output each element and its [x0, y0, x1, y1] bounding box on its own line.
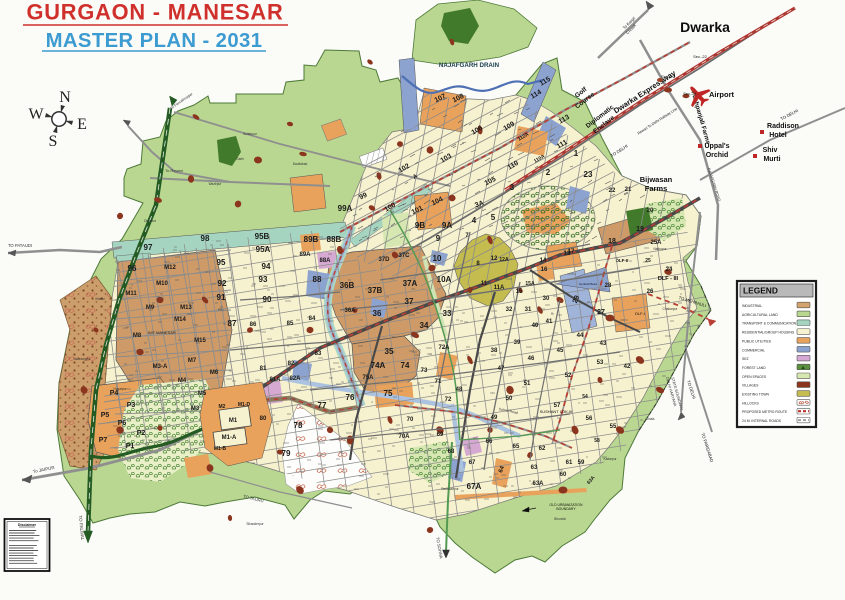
svg-text:42: 42: [624, 364, 631, 370]
svg-text:P3: P3: [127, 402, 136, 409]
svg-text:26: 26: [647, 289, 654, 295]
svg-text:Hotel: Hotel: [769, 132, 787, 139]
svg-text:P2: P2: [137, 430, 146, 437]
svg-text:70A: 70A: [398, 434, 410, 440]
svg-text:88B: 88B: [327, 235, 342, 244]
svg-text:95A: 95A: [256, 245, 271, 254]
svg-text:Shiv: Shiv: [763, 147, 778, 154]
svg-text:GURGAON - MANESAR: GURGAON - MANESAR: [27, 0, 284, 25]
svg-text:M8: M8: [133, 333, 142, 339]
svg-text:24 M. INTERNAL ROADS: 24 M. INTERNAL ROADS: [742, 419, 782, 423]
svg-text:25A: 25A: [650, 240, 662, 246]
svg-text:63A: 63A: [532, 481, 544, 487]
svg-text:46: 46: [528, 356, 535, 362]
svg-text:97: 97: [144, 243, 153, 252]
svg-text:73: 73: [421, 368, 428, 374]
svg-text:53: 53: [597, 360, 604, 366]
svg-text:S: S: [49, 133, 58, 150]
svg-text:14: 14: [540, 258, 547, 264]
svg-text:45: 45: [557, 348, 564, 354]
svg-text:M15: M15: [194, 338, 206, 344]
svg-text:N: N: [59, 89, 71, 106]
svg-text:96: 96: [128, 264, 137, 273]
svg-text:M3: M3: [191, 406, 200, 412]
svg-text:Airport: Airport: [709, 90, 735, 99]
svg-text:TO PATAUDI: TO PATAUDI: [8, 243, 32, 248]
svg-text:58: 58: [594, 438, 600, 444]
svg-text:P4: P4: [110, 390, 119, 397]
svg-text:36B: 36B: [340, 281, 355, 290]
svg-text:M10: M10: [156, 281, 168, 287]
svg-text:Sec.-22: Sec.-22: [693, 54, 708, 59]
svg-text:15: 15: [516, 289, 523, 295]
svg-text:M4: M4: [178, 378, 187, 384]
svg-text:2: 2: [546, 168, 551, 177]
svg-text:44: 44: [577, 333, 584, 339]
svg-text:21: 21: [625, 187, 632, 193]
svg-text:M11: M11: [125, 291, 137, 297]
svg-text:To Rewari: To Rewari: [165, 168, 183, 173]
svg-text:FOREST LAND: FOREST LAND: [742, 366, 766, 370]
svg-text:Raddison: Raddison: [767, 123, 799, 130]
svg-text:36: 36: [373, 309, 382, 318]
svg-text:36A: 36A: [344, 308, 356, 314]
svg-text:Orchid: Orchid: [706, 152, 729, 159]
svg-text:77: 77: [318, 401, 327, 410]
svg-text:12A: 12A: [499, 257, 509, 263]
svg-text:94: 94: [262, 262, 271, 271]
svg-text:Sec.-23: Sec.-23: [661, 74, 676, 79]
svg-text:91: 91: [217, 293, 226, 302]
svg-text:NAJAFGARH DRAIN: NAJAFGARH DRAIN: [439, 62, 500, 69]
svg-text:48: 48: [456, 387, 463, 393]
svg-text:Central Plaza: Central Plaza: [579, 282, 597, 286]
svg-text:AGRICULTURAL LAND: AGRICULTURAL LAND: [742, 313, 778, 317]
svg-text:P6: P6: [118, 420, 127, 427]
svg-text:P5: P5: [101, 412, 110, 419]
svg-text:15A: 15A: [525, 281, 535, 287]
svg-text:DLF-II: DLF-II: [616, 258, 629, 263]
svg-text:Wazirpur: Wazirpur: [209, 182, 223, 186]
svg-text:79: 79: [282, 449, 291, 458]
svg-text:66: 66: [486, 439, 493, 445]
svg-text:75: 75: [384, 389, 393, 398]
svg-text:PROPOSED METRO ROUTE: PROPOSED METRO ROUTE: [742, 410, 788, 414]
svg-text:DLF - III: DLF - III: [658, 276, 679, 282]
svg-text:67A: 67A: [467, 482, 482, 491]
svg-text:20: 20: [647, 208, 654, 214]
svg-text:81: 81: [260, 366, 267, 372]
svg-text:56: 56: [586, 416, 593, 422]
svg-text:50: 50: [506, 396, 513, 402]
svg-text:65: 65: [513, 444, 520, 450]
svg-text:M1-B: M1-B: [214, 446, 227, 452]
svg-text:P7: P7: [99, 437, 108, 444]
svg-text:COMMERCIAL: COMMERCIAL: [742, 348, 765, 352]
svg-text:19: 19: [636, 226, 644, 233]
svg-text:Dwarka: Dwarka: [680, 19, 730, 35]
svg-text:10: 10: [433, 254, 442, 263]
svg-text:40: 40: [532, 323, 539, 329]
svg-text:54: 54: [582, 394, 588, 400]
svg-text:10A: 10A: [437, 275, 452, 284]
svg-text:69: 69: [437, 432, 444, 438]
svg-text:11A: 11A: [494, 285, 505, 291]
svg-text:99A: 99A: [338, 204, 353, 213]
svg-text:E: E: [77, 116, 87, 133]
svg-text:90: 90: [263, 295, 272, 304]
svg-text:39: 39: [514, 340, 521, 346]
svg-text:82A: 82A: [289, 376, 301, 382]
svg-text:24: 24: [666, 267, 673, 273]
svg-text:M7: M7: [188, 358, 197, 364]
svg-text:89B: 89B: [304, 235, 319, 244]
svg-text:63: 63: [531, 465, 538, 471]
svg-text:4: 4: [472, 216, 477, 225]
svg-text:95B: 95B: [255, 232, 270, 241]
svg-text:Naurangpur: Naurangpur: [74, 357, 92, 361]
svg-text:VILLAGES: VILLAGES: [742, 384, 759, 388]
svg-text:Ghata: Ghata: [646, 417, 655, 421]
svg-text:M2: M2: [219, 404, 226, 410]
svg-text:35: 35: [385, 347, 394, 356]
svg-text:37D: 37D: [378, 257, 390, 263]
svg-text:PUBLIC UTILITIES: PUBLIC UTILITIES: [742, 339, 772, 343]
svg-text:Sikanderpur: Sikanderpur: [246, 522, 264, 526]
svg-text:Garhi: Garhi: [236, 157, 244, 161]
svg-text:EXISTING TOWN: EXISTING TOWN: [742, 393, 770, 397]
svg-text:TRANSPORT & COMMUNICATION: TRANSPORT & COMMUNICATION: [742, 322, 797, 326]
svg-text:9A: 9A: [442, 221, 452, 230]
svg-text:61: 61: [566, 460, 573, 466]
svg-text:47: 47: [498, 366, 505, 372]
svg-text:31: 31: [525, 307, 532, 313]
svg-text:60: 60: [560, 472, 567, 478]
svg-text:RESIDENTIAL/GROUP HOUSING: RESIDENTIAL/GROUP HOUSING: [742, 331, 795, 335]
svg-text:SUSHANT LOK-III: SUSHANT LOK-III: [540, 409, 573, 414]
svg-text:28: 28: [605, 283, 612, 289]
svg-text:9: 9: [436, 234, 441, 243]
svg-text:16: 16: [541, 267, 548, 273]
svg-text:Uppal's: Uppal's: [704, 143, 729, 150]
svg-text:72A: 72A: [438, 345, 450, 351]
svg-text:M1-D: M1-D: [238, 402, 251, 408]
svg-text:75A: 75A: [362, 375, 374, 381]
svg-text:5: 5: [491, 213, 496, 222]
svg-text:18: 18: [608, 238, 616, 245]
svg-text:Badshahpur: Badshahpur: [441, 487, 459, 491]
svg-text:85: 85: [287, 321, 294, 327]
svg-text:M13: M13: [180, 305, 192, 311]
svg-text:1: 1: [574, 149, 579, 158]
svg-text:MASTER PLAN - 2031: MASTER PLAN - 2031: [46, 30, 263, 52]
svg-text:M14: M14: [174, 317, 186, 323]
svg-text:Daultabad: Daultabad: [293, 162, 308, 166]
svg-text:88A: 88A: [319, 258, 331, 264]
svg-text:37C: 37C: [398, 253, 410, 259]
svg-text:71: 71: [435, 379, 442, 385]
svg-text:43: 43: [600, 341, 607, 347]
svg-text:17: 17: [568, 249, 575, 255]
svg-text:Murti: Murti: [763, 156, 780, 163]
svg-text:82: 82: [288, 361, 295, 367]
svg-text:68: 68: [448, 449, 455, 455]
svg-text:95: 95: [217, 258, 226, 267]
svg-text:Kadarpur: Kadarpur: [603, 457, 617, 461]
svg-text:Nathupur: Nathupur: [653, 247, 667, 251]
svg-text:67: 67: [469, 460, 476, 466]
svg-text:M6: M6: [210, 370, 219, 376]
svg-text:12: 12: [491, 256, 498, 262]
svg-text:LEGEND: LEGEND: [743, 286, 778, 296]
svg-text:92: 92: [218, 279, 227, 288]
svg-text:87: 87: [228, 319, 237, 328]
svg-text:M1: M1: [229, 418, 238, 424]
svg-text:41: 41: [546, 319, 553, 325]
svg-text:62: 62: [539, 446, 546, 452]
svg-text:86: 86: [250, 322, 257, 328]
svg-text:34: 34: [420, 321, 429, 330]
svg-text:Sec.-21: Sec.-21: [683, 91, 698, 96]
svg-text:89A: 89A: [299, 252, 311, 258]
svg-text:IMT MANESAR: IMT MANESAR: [148, 330, 176, 335]
svg-text:38: 38: [491, 348, 498, 354]
svg-text:25: 25: [645, 258, 651, 264]
svg-text:74: 74: [401, 361, 410, 370]
svg-text:70: 70: [407, 417, 414, 423]
svg-text:80: 80: [260, 416, 267, 422]
svg-text:SEZ: SEZ: [742, 357, 749, 361]
svg-text:M1-A: M1-A: [222, 435, 237, 441]
svg-text:9B: 9B: [415, 221, 425, 230]
svg-text:78: 78: [294, 421, 303, 430]
svg-text:49: 49: [491, 415, 498, 421]
svg-text:51: 51: [524, 381, 531, 387]
svg-text:Sultanpur: Sultanpur: [243, 132, 258, 136]
svg-text:83: 83: [315, 351, 322, 357]
svg-text:DLF-I: DLF-I: [635, 311, 645, 316]
svg-text:23: 23: [584, 170, 593, 179]
svg-text:BOUNDARY: BOUNDARY: [556, 507, 576, 511]
svg-text:98: 98: [201, 234, 210, 243]
svg-text:OPEN SPACES: OPEN SPACES: [742, 375, 767, 379]
svg-text:37: 37: [405, 297, 414, 306]
svg-text:M12: M12: [164, 265, 176, 271]
svg-text:88: 88: [313, 275, 322, 284]
svg-text:30: 30: [543, 296, 550, 302]
svg-text:74A: 74A: [371, 361, 386, 370]
svg-text:Bijwasan: Bijwasan: [640, 175, 673, 184]
svg-text:37A: 37A: [403, 279, 418, 288]
svg-text:Dhankot: Dhankot: [144, 219, 156, 223]
svg-text:84: 84: [309, 316, 316, 322]
svg-text:55: 55: [610, 424, 617, 430]
svg-text:72: 72: [445, 397, 452, 403]
svg-text:93: 93: [259, 275, 268, 284]
svg-text:Kherki: Kherki: [95, 297, 104, 301]
svg-text:M9: M9: [146, 305, 155, 311]
svg-text:11: 11: [481, 281, 488, 287]
svg-text:27: 27: [597, 309, 605, 316]
svg-text:3: 3: [510, 183, 515, 192]
svg-text:M5: M5: [198, 391, 207, 397]
svg-text:37B: 37B: [368, 286, 383, 295]
svg-text:P1: P1: [126, 443, 135, 450]
svg-text:W: W: [28, 106, 44, 123]
svg-text:Chakarpur: Chakarpur: [663, 307, 679, 311]
svg-text:M3-A: M3-A: [153, 364, 168, 370]
svg-text:81A: 81A: [269, 377, 281, 383]
svg-text:Bhondsi: Bhondsi: [554, 517, 566, 521]
svg-text:52: 52: [565, 373, 572, 379]
svg-text:76: 76: [346, 393, 355, 402]
svg-text:59: 59: [578, 460, 585, 466]
svg-text:HILLOCKS: HILLOCKS: [742, 401, 760, 405]
svg-text:Farms: Farms: [645, 184, 668, 193]
svg-text:33: 33: [443, 309, 452, 318]
svg-text:INDUSTRIAL: INDUSTRIAL: [742, 304, 762, 308]
svg-text:32: 32: [506, 307, 513, 313]
svg-text:22: 22: [609, 188, 616, 194]
svg-text:Disclaimer: Disclaimer: [18, 523, 37, 527]
